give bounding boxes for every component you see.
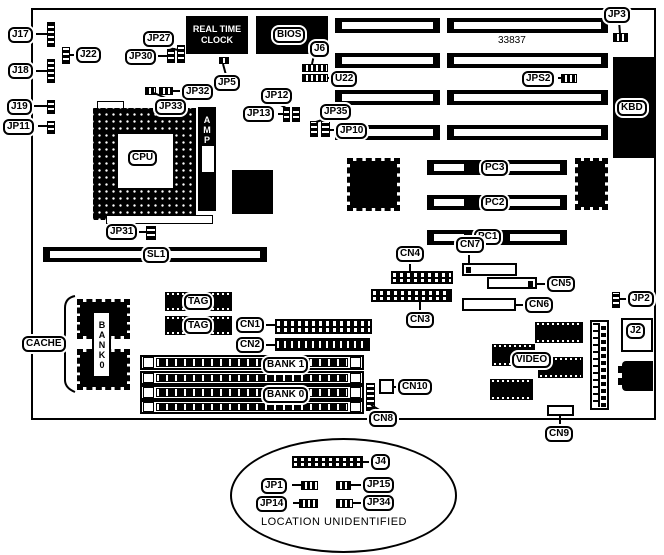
bank1-label: BANK 1 — [263, 357, 308, 373]
jp11-label: JP11 — [3, 119, 34, 135]
jp13-label: JP13 — [243, 106, 274, 122]
cn10-label: CN10 — [398, 379, 432, 395]
jp27-label: JP27 — [143, 31, 174, 47]
cn1-label: CN1 — [236, 317, 264, 333]
cpu-label: CPU — [128, 150, 157, 166]
jp10-label: JP10 — [336, 123, 367, 139]
cn6-label: CN6 — [525, 297, 553, 313]
cn4-label: CN4 — [396, 246, 424, 262]
j22-label: J22 — [76, 47, 101, 63]
j17-label: J17 — [8, 27, 33, 43]
jp3-label: JP3 — [604, 7, 630, 23]
j18-label: J18 — [8, 63, 33, 79]
cn9-label: CN9 — [545, 426, 573, 442]
cn8-label: CN8 — [369, 411, 397, 427]
video-label: VIDEO — [512, 352, 551, 368]
u22-label: U22 — [331, 71, 357, 87]
cn2-label: CN2 — [236, 337, 264, 353]
j6-label: J6 — [310, 41, 329, 57]
cn5-label: CN5 — [547, 276, 575, 292]
j19-label: J19 — [7, 99, 32, 115]
j4-label: J4 — [371, 454, 390, 470]
cache-label: CACHE — [22, 336, 66, 352]
tag-label-2: TAG — [184, 318, 212, 334]
bios-label: BIOS — [273, 27, 305, 43]
jp30-label: JP30 — [125, 49, 156, 65]
jp34-label: JP34 — [363, 495, 394, 511]
jp33-label: JP33 — [155, 99, 186, 115]
cn7-label: CN7 — [456, 237, 484, 253]
jp1-label: JP1 — [261, 478, 287, 494]
jps2-label: JPS2 — [522, 71, 554, 87]
jp2-label: JP2 — [628, 291, 654, 307]
pc2-label: PC2 — [481, 195, 508, 211]
jp15-label: JP15 — [363, 477, 394, 493]
j2-label: J2 — [626, 323, 645, 339]
kbd-label: KBD — [617, 100, 647, 116]
jp31-label: JP31 — [106, 224, 137, 240]
tag-label-1: TAG — [184, 294, 212, 310]
jp35-label: JP35 — [320, 104, 351, 120]
cn3-label: CN3 — [406, 312, 434, 328]
motherboard-diagram: REAL TIMECLOCK BIOS 33837 KBD JP3 JPS2 J… — [0, 0, 664, 555]
jp12-label: JP12 — [261, 88, 292, 104]
jp32-label: JP32 — [182, 84, 213, 100]
jp14-label: JP14 — [256, 496, 287, 512]
jp5-label: JP5 — [214, 75, 240, 91]
pc3-label: PC3 — [481, 160, 508, 176]
sl1-label: SL1 — [143, 247, 169, 263]
bank0-label: BANK 0 — [263, 387, 308, 403]
